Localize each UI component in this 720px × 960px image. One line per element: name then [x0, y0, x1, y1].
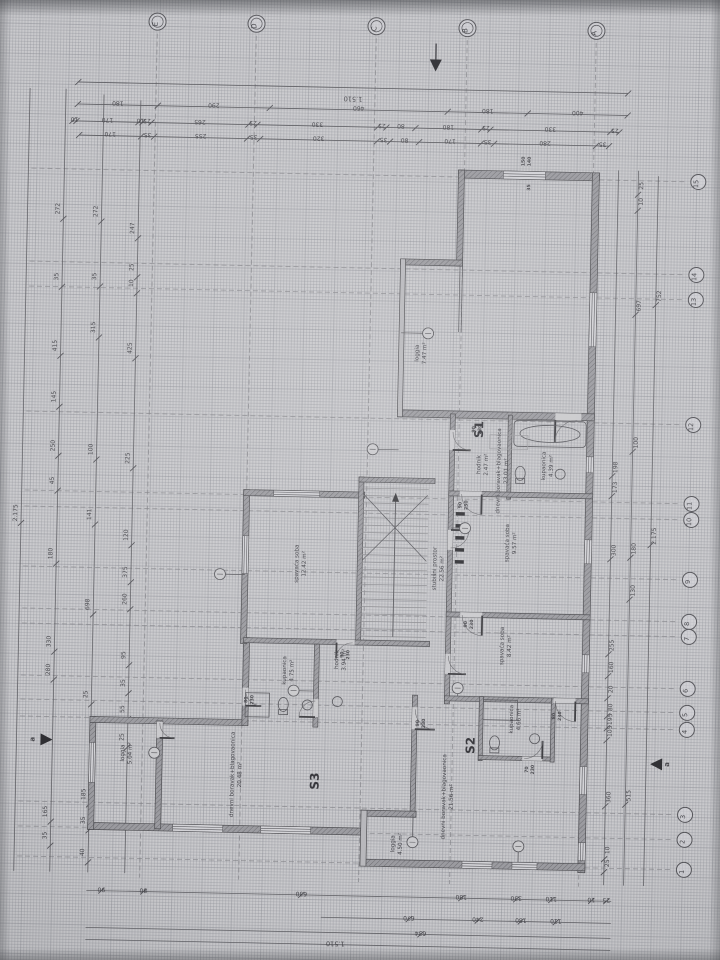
- walls: [87, 163, 600, 873]
- axis-number-label: 6: [682, 689, 690, 693]
- dim-value: 10: [70, 115, 78, 122]
- dim-value: 35: [144, 131, 152, 138]
- room-area-label: 9.57 m²: [511, 532, 518, 554]
- dim-value: 25: [602, 896, 610, 903]
- dim-value: 141: [86, 508, 93, 520]
- axis-number-label: 7: [683, 637, 691, 641]
- section-letter: a: [28, 736, 36, 741]
- dim-value: 20: [608, 685, 615, 693]
- dim-value: 280: [539, 139, 551, 146]
- section-arrow: [430, 59, 442, 71]
- axis-letter-label: B: [461, 28, 469, 33]
- room-area-label: 12.42 m²: [300, 551, 308, 577]
- dim-value: 110: [545, 895, 557, 902]
- wall-segment: [90, 716, 248, 725]
- wall-segment: [550, 698, 555, 762]
- dim-value: 40: [79, 848, 86, 856]
- window: [503, 171, 545, 180]
- dim-value: 173: [612, 481, 619, 493]
- dim-value: 35: [80, 816, 87, 824]
- dim-value: 110: [550, 917, 562, 924]
- dim-value: 170: [104, 130, 116, 137]
- dim-value: 105: [607, 725, 614, 737]
- line: [459, 266, 460, 332]
- door-size-label: 150: [521, 156, 527, 166]
- dim-value: 670: [403, 914, 415, 921]
- wardrobe: [456, 512, 465, 516]
- dim-value: 55: [119, 705, 126, 713]
- door-size-label: 35: [526, 184, 532, 191]
- dim-value: 330: [544, 125, 556, 132]
- room-area-label: 4.50 m²: [397, 833, 404, 855]
- dim-chain-line: [86, 890, 611, 901]
- window: [89, 742, 96, 782]
- parapet-wall: [397, 259, 405, 417]
- dim-value: 400: [572, 109, 584, 116]
- axis-line-horizontal: [24, 506, 679, 520]
- door-swing-arc: [453, 432, 471, 450]
- dim-value: 180: [515, 916, 527, 923]
- window: [578, 843, 585, 861]
- dim-value: 25: [82, 690, 89, 698]
- dim-value: 240: [472, 915, 484, 922]
- dim-value: 425: [127, 342, 134, 354]
- dim-value: 180: [482, 107, 494, 114]
- room-name-label: dnevni boravak+blagovaonica: [229, 732, 237, 817]
- dim-value: 250: [50, 440, 57, 452]
- dim-value: 330: [45, 636, 52, 648]
- axis-number-label: 8: [683, 622, 691, 626]
- dim-value: 265: [194, 118, 206, 125]
- dim-value: 25: [604, 859, 611, 867]
- dim-value: 2.175: [651, 527, 658, 545]
- room-area-label: 3.94 m²: [341, 649, 348, 671]
- dim-value: 25: [378, 122, 386, 129]
- wardrobe: [455, 548, 464, 552]
- room-area-label: 4.39 m²: [548, 455, 555, 477]
- dim-chain-line: [624, 171, 639, 886]
- axis-number-label: 11: [685, 502, 693, 510]
- axis-bubble: [149, 13, 166, 30]
- room-area-label: 8.42 m²: [506, 635, 513, 657]
- dim-value: 25: [638, 182, 645, 190]
- axis-number-label: 9: [684, 580, 692, 584]
- dim-total: 1.510: [326, 939, 345, 947]
- dim-value: 120: [123, 529, 130, 541]
- stair-tread: [363, 488, 429, 489]
- dim-value: 180: [442, 123, 454, 130]
- dim-value: 35: [120, 679, 127, 687]
- door-opening: [460, 491, 482, 496]
- dim-value: 180: [112, 99, 124, 106]
- dim-value: 160: [608, 661, 615, 673]
- dim-value: 10: [638, 198, 645, 206]
- axis-line-horizontal: [22, 623, 677, 637]
- door-size-label: 80: [551, 713, 557, 720]
- dim-value: 180: [455, 893, 467, 900]
- room-area-label: 4.75 m²: [288, 660, 295, 682]
- dim-value: 35: [380, 136, 388, 143]
- room-name-label: kupaonica: [509, 705, 516, 734]
- dim-value: 255: [195, 132, 207, 139]
- dim-value: 35: [250, 133, 258, 140]
- axis-number-label: 12: [687, 423, 695, 431]
- dim-value: 290: [208, 101, 220, 108]
- scanned-floorplan-photo: EDCBA1514131211109876543211.510180290460…: [0, 0, 720, 960]
- dim-value: 25: [118, 733, 125, 741]
- dim-value: 300: [610, 544, 617, 556]
- room-area-label: 2.47 m²: [483, 454, 490, 476]
- dim-value: 698: [84, 598, 91, 610]
- dim-value: 634: [415, 929, 427, 936]
- window: [584, 540, 592, 564]
- dim-value: 630: [295, 890, 307, 897]
- wall-segment: [361, 810, 416, 817]
- axis-number-label: 4: [681, 730, 689, 734]
- door-size-label: 70: [524, 766, 530, 773]
- dim-value: 90: [97, 886, 105, 893]
- room-name-label: dnevni boravak+blagovaonica: [495, 428, 503, 513]
- window: [586, 457, 593, 473]
- dim-value: 100: [633, 437, 640, 449]
- parapet-wall: [360, 810, 367, 866]
- wardrobe: [455, 560, 464, 564]
- wall-segment: [242, 638, 250, 726]
- dim-value: 315: [90, 321, 97, 333]
- axis-letter-label: A: [590, 31, 598, 36]
- room-name-label: loggia: [120, 745, 126, 762]
- sink: [332, 696, 342, 706]
- window: [462, 861, 492, 869]
- apartment-id-label: S1: [472, 421, 486, 438]
- dim-chain-line: [321, 917, 611, 923]
- door-size-label: 230: [421, 719, 427, 729]
- dim-value: 145: [51, 391, 58, 403]
- door-size-label: 230: [469, 620, 475, 630]
- room-area-label: 7.47 m²: [421, 342, 428, 364]
- dim-value: 80: [397, 122, 405, 129]
- dim-value: 415: [52, 340, 59, 352]
- dim-value: 247: [129, 222, 136, 234]
- sink: [555, 469, 565, 479]
- room-name-label: hodnik: [476, 454, 482, 474]
- dim-value: 320: [313, 134, 325, 141]
- room-name-label: hodnik: [334, 649, 340, 669]
- axis-number-label: 1: [678, 870, 686, 874]
- room-area-label: 21.56 m²: [448, 784, 456, 810]
- axis-letter-label: D: [250, 23, 258, 29]
- dim-value: 360: [605, 791, 612, 803]
- dim-value: 10: [128, 279, 135, 287]
- wardrobe: [455, 536, 464, 540]
- dim-value: 260: [121, 593, 128, 605]
- room-area-label: 5.04 m²: [126, 742, 133, 764]
- section-arrow: [40, 733, 52, 745]
- dim-chain-line: [86, 927, 611, 938]
- room-name-label: loggia: [390, 835, 396, 852]
- window: [512, 862, 537, 870]
- axis-line-vertical: [239, 36, 257, 880]
- wall-segment: [401, 259, 463, 266]
- door-opening: [313, 699, 318, 717]
- door-size-label: 90: [463, 621, 469, 628]
- dim-value: 80: [607, 703, 614, 711]
- door-opening: [450, 430, 455, 450]
- line: [461, 266, 462, 332]
- room-name-label: loggia: [414, 345, 420, 362]
- section-arrow: [650, 758, 662, 770]
- axis-letter-label: C: [370, 26, 378, 31]
- dim-value: 130: [630, 585, 637, 597]
- door-size-label: 90: [457, 502, 463, 509]
- door-size-label: 80: [243, 696, 249, 703]
- dim-value: 100: [87, 443, 94, 455]
- window: [173, 824, 223, 832]
- dim-value: 752: [656, 290, 663, 302]
- room-name-label: kupaonica: [541, 451, 548, 480]
- dim-value: 185: [80, 788, 87, 800]
- bathtub-basin: [520, 425, 580, 443]
- apartment-id-label: S3: [308, 772, 322, 789]
- room-area-label: 4.66 m²: [515, 708, 522, 730]
- axis-number-label: 15: [692, 180, 700, 188]
- paper-sheet: EDCBA1514131211109876543211.510180290460…: [0, 0, 720, 960]
- dim-value: 330: [510, 894, 522, 901]
- dim-value: 25: [611, 127, 619, 134]
- wall-segment: [359, 477, 435, 484]
- fixtures: [147, 322, 589, 863]
- axis-letter-label: E: [151, 22, 159, 27]
- door-openings: [156, 405, 581, 762]
- room-area-label: 23.01 m²: [502, 458, 510, 484]
- dim-total: 1.510: [344, 95, 363, 103]
- dim-value: 165: [42, 806, 49, 818]
- sink: [530, 734, 540, 744]
- door-opening: [460, 612, 482, 617]
- dim-value: 35: [91, 272, 98, 280]
- dim-value: 280: [45, 664, 52, 676]
- wall-segment: [457, 170, 465, 266]
- dim-chain-line: [14, 88, 30, 871]
- dim-chain-line: [72, 121, 619, 132]
- dim-value: 198: [612, 461, 619, 473]
- door-size-label: 230: [249, 695, 255, 705]
- dim-value: 25: [482, 124, 490, 131]
- dim-value: 35: [41, 831, 48, 839]
- dim-value: 25: [128, 263, 135, 271]
- door-size-label: 140: [527, 157, 533, 167]
- room-name-label: spavaća soba: [503, 524, 511, 562]
- wall-segment: [507, 415, 513, 499]
- window: [261, 826, 311, 834]
- dim-value: 80: [139, 886, 147, 893]
- door-size-label: 230: [557, 711, 563, 721]
- dim-value: 697: [636, 300, 643, 312]
- dim-value: 330: [311, 120, 323, 127]
- room-area-label: 20.48 m²: [236, 762, 244, 788]
- doors: [159, 412, 581, 760]
- room-name-label: spavaća soba: [293, 545, 301, 583]
- axis-number-label: 14: [690, 273, 698, 281]
- room-name-label: kupaonica: [282, 656, 289, 685]
- dim-value: 460: [353, 104, 365, 111]
- dim-chain-line: [85, 939, 610, 950]
- door-size-label: 90: [415, 720, 421, 727]
- bathtub: [514, 420, 587, 448]
- wall-segment: [356, 477, 365, 645]
- section-letter: a: [663, 762, 671, 767]
- dim-value: 180: [47, 548, 54, 560]
- door-swing-arc: [448, 656, 466, 674]
- window: [274, 490, 320, 497]
- dim-chain-line: [78, 82, 628, 94]
- window: [242, 536, 249, 574]
- door-opening: [555, 413, 581, 421]
- dim-value: 25: [143, 117, 151, 124]
- door-opening: [553, 698, 575, 703]
- dim-value: 272: [54, 203, 61, 215]
- axis-line-horizontal: [29, 286, 684, 300]
- door-size-label: 230: [463, 500, 469, 510]
- dim-value: 170: [444, 137, 456, 144]
- door-opening: [448, 530, 453, 550]
- floor-plan: EDCBA1514131211109876543211.510180290460…: [0, 0, 720, 960]
- door-opening: [445, 654, 450, 674]
- axis-number-label: 3: [679, 815, 687, 819]
- dim-value: 95: [120, 651, 127, 659]
- axis-line-vertical: [359, 38, 377, 882]
- window: [589, 293, 597, 347]
- dim-value: 80: [401, 136, 409, 143]
- dim-value: 272: [92, 205, 99, 217]
- window: [582, 655, 589, 673]
- dim-value: 255: [608, 639, 615, 651]
- dim-value: 195: [607, 713, 614, 725]
- dim-value: 35: [484, 138, 492, 145]
- dim-value: 10: [604, 846, 611, 854]
- dim-value: 35: [599, 140, 607, 147]
- dim-value: 25: [249, 119, 257, 126]
- dim-chain-line: [78, 104, 628, 116]
- dim-value: 515: [625, 790, 632, 802]
- room-name-label: stubišni prostor: [431, 546, 439, 590]
- dim-value: 180: [631, 543, 638, 555]
- dim-chain-line: [604, 170, 619, 885]
- axis-number-label: 10: [685, 518, 693, 526]
- axis-number-label: 13: [690, 298, 698, 306]
- window: [579, 767, 587, 795]
- wall-segment: [478, 697, 483, 761]
- room-name-label: spavaća soba: [498, 627, 506, 665]
- axis-number-label: 5: [681, 713, 689, 717]
- dim-chain-line: [79, 135, 609, 146]
- room-name-label: dnevni boravak+blagovaonica: [440, 754, 448, 839]
- door-size-label: 230: [530, 765, 536, 775]
- dim-value: 10: [587, 896, 595, 903]
- dim-value: 225: [124, 452, 131, 464]
- axis-line-horizontal: [18, 801, 673, 815]
- dim-value: 35: [53, 273, 60, 281]
- dim-value: 45: [49, 476, 56, 484]
- apartment-id-label: S2: [463, 737, 477, 754]
- room-area-label: 22.56 m²: [438, 556, 446, 582]
- axis-number-label: 2: [678, 840, 686, 844]
- dim-value: 2.175: [12, 504, 19, 522]
- wall-segment: [88, 822, 364, 835]
- dim-value: 375: [122, 566, 129, 578]
